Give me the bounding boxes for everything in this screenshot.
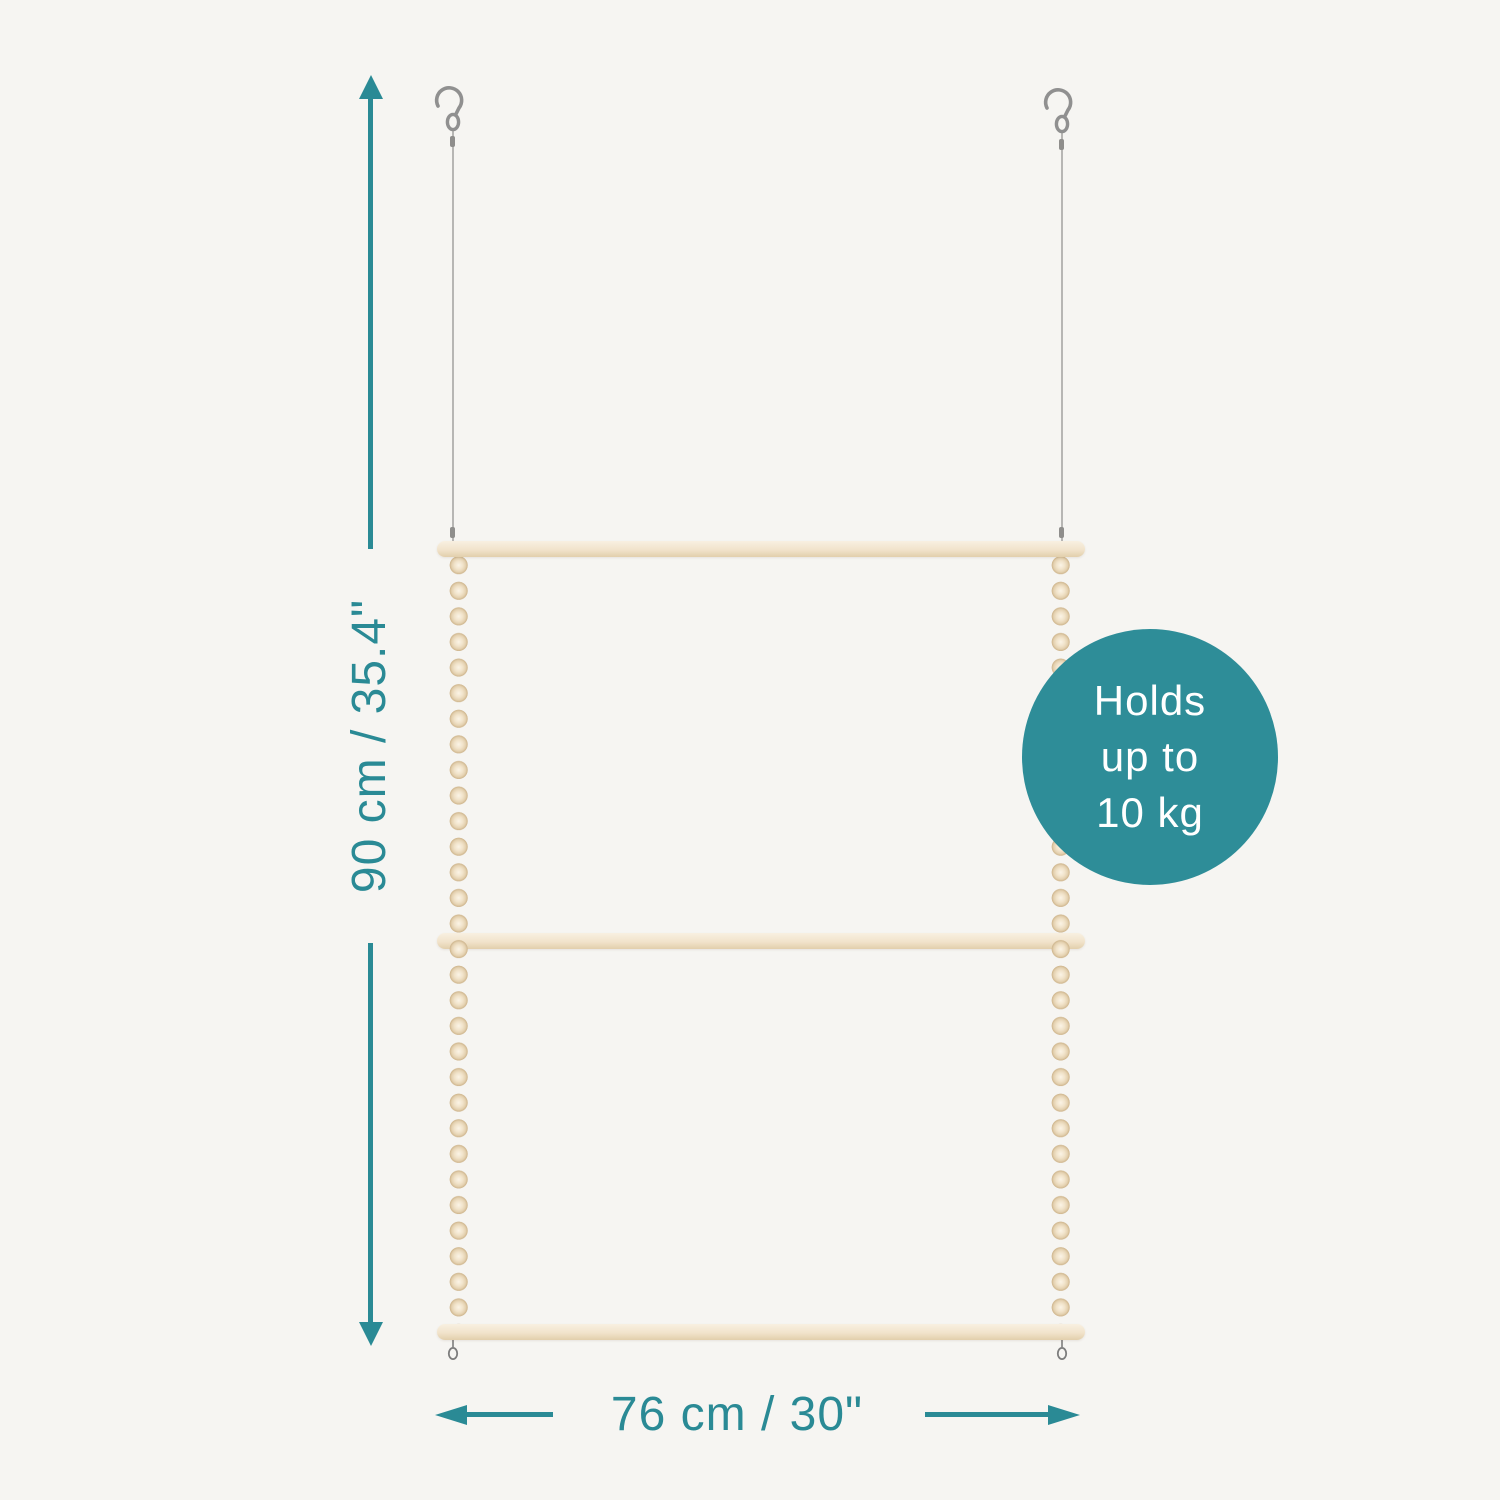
arrow-down-icon (359, 1322, 383, 1346)
left-bead-strand (447, 556, 473, 1324)
right-s-hook-icon (1037, 74, 1081, 136)
left-s-hook-icon (428, 72, 472, 134)
width-dimension-line (465, 1412, 553, 1417)
arrow-right-icon (1048, 1405, 1080, 1425)
right-wire-crimp (1059, 139, 1064, 150)
product-dimension-illustration: 90 cm / 35.4" 76 cm / 30" Holds up to 10… (0, 0, 1500, 1500)
right-wire-crimp (1059, 527, 1064, 538)
left-wire-crimp (450, 527, 455, 538)
capacity-badge-line: Holds (1094, 673, 1206, 729)
height-dimension-line (368, 943, 373, 1326)
right-eye-hook-icon (1056, 1340, 1068, 1364)
top-rail (437, 541, 1085, 557)
width-label: 76 cm / 30" (557, 1385, 917, 1445)
capacity-badge: Holds up to 10 kg (1022, 629, 1278, 885)
arrow-left-icon (435, 1405, 467, 1425)
left-wire-crimp (450, 136, 455, 147)
height-dimension-line (368, 95, 373, 549)
height-label: 90 cm / 35.4" (340, 536, 400, 956)
left-hanging-wire (452, 128, 454, 541)
bottom-rail (437, 1324, 1085, 1340)
middle-rail (437, 933, 1085, 949)
capacity-badge-line: up to (1101, 729, 1199, 785)
right-hanging-wire (1061, 130, 1063, 541)
width-dimension-line (925, 1412, 1050, 1417)
left-eye-hook-icon (447, 1340, 459, 1364)
capacity-badge-line: 10 kg (1096, 785, 1204, 841)
